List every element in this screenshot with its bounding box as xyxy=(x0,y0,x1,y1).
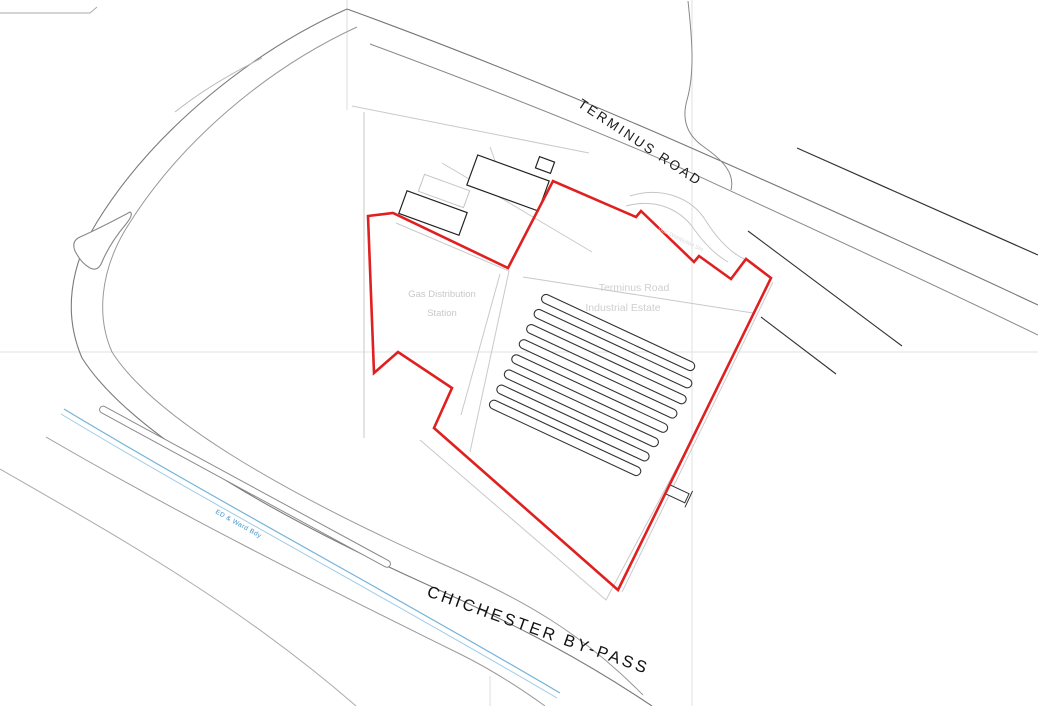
bypass-edge-south xyxy=(46,437,545,706)
parcel-line-gas-east xyxy=(396,223,509,452)
stream-line-south xyxy=(61,414,557,698)
parcel-line-top xyxy=(352,106,589,153)
chichester-bypass-label: CHICHESTER BY-PASS xyxy=(425,583,652,678)
gas-station-label-line2: Station xyxy=(427,308,457,319)
gas-station-label-line1: Gas Distribution xyxy=(408,289,476,300)
terminus-road-label: TERMINUS ROAD xyxy=(575,96,705,189)
traffic-island xyxy=(74,212,132,269)
detail-line-right-upper xyxy=(748,231,902,346)
building-3-small xyxy=(535,157,554,174)
sheet-edge-mark xyxy=(0,7,97,13)
parcel-line-estate-south xyxy=(420,424,700,600)
ward-boundary-label: ED & Ward Bdy xyxy=(214,509,263,540)
yard-rows-group xyxy=(488,293,696,477)
detail-line-right-lower xyxy=(761,317,836,374)
estate-label-line1: Terminus Road xyxy=(599,282,670,294)
ring-road-lane-line xyxy=(175,58,262,112)
bypass-verge-line xyxy=(0,469,356,706)
access-road-edge-outer xyxy=(630,192,744,259)
map-drawing: TERMINUS ROAD CHICHESTER BY-PASS Gas Dis… xyxy=(0,0,1038,706)
estate-label-line2: Industrial Estate xyxy=(585,302,660,314)
road-median-island xyxy=(98,405,391,569)
stream-line-north xyxy=(64,409,560,693)
site-plan-map: TERMINUS ROAD CHICHESTER BY-PASS Gas Dis… xyxy=(0,0,1038,706)
ring-road-outer-edge xyxy=(71,9,652,706)
